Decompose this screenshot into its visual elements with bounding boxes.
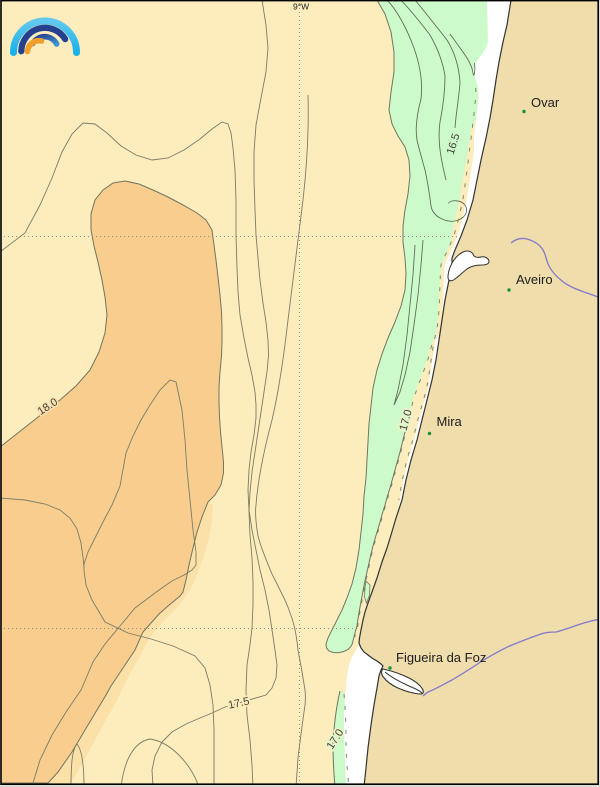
svg-text:Aveiro: Aveiro [516, 272, 553, 287]
svg-text:Ovar: Ovar [531, 95, 560, 110]
svg-text:9°W: 9°W [293, 2, 309, 12]
svg-text:Mira: Mira [437, 414, 463, 429]
svg-text:Figueira da Foz: Figueira da Foz [396, 650, 486, 665]
